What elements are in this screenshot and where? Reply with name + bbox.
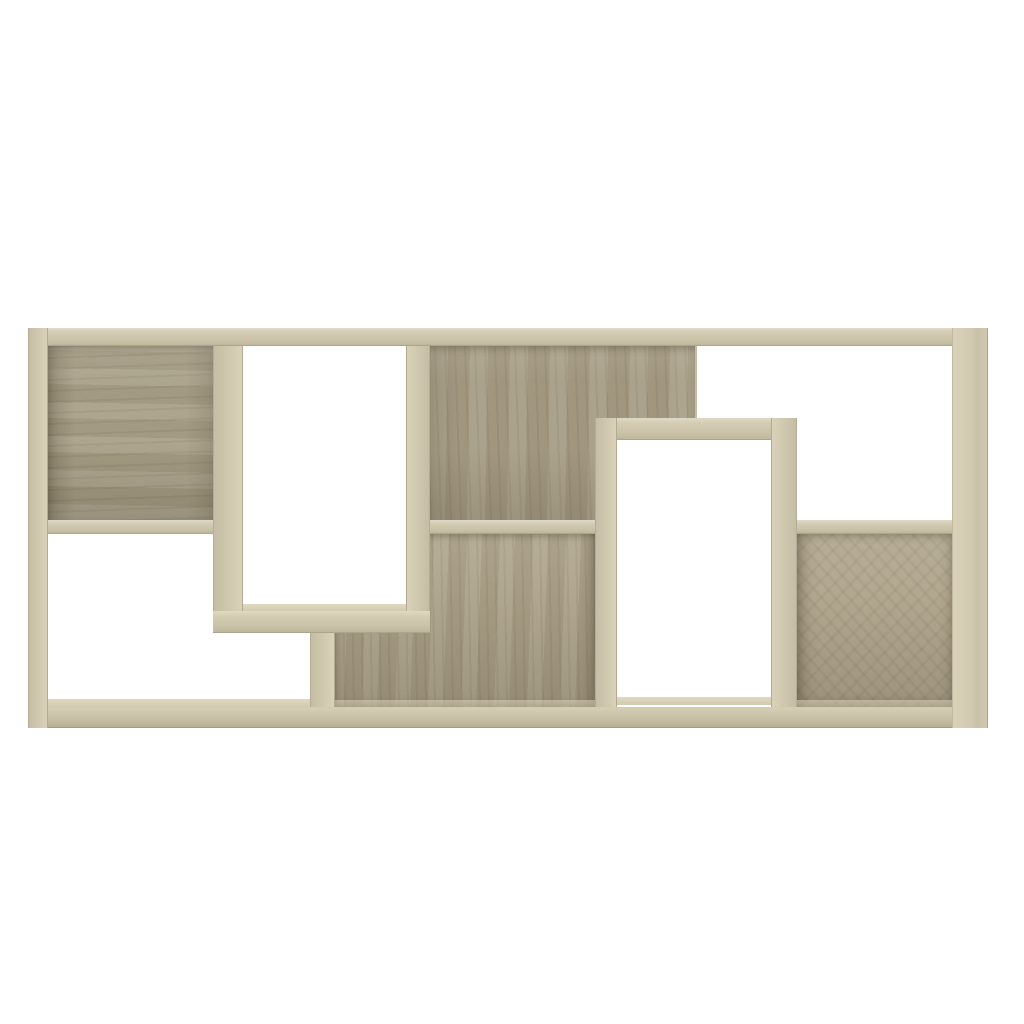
back-panel-top-left — [48, 346, 213, 520]
left-side-board — [28, 328, 48, 728]
lower-frame-top-board — [595, 418, 797, 440]
right-shelf — [797, 520, 952, 534]
open-compartment-lower-frame — [617, 440, 771, 705]
middle-shelf — [430, 520, 595, 534]
floor-face-lower-frame — [617, 697, 771, 705]
floor-face-bottom-left — [48, 699, 310, 707]
floor-face-bottom-right — [797, 700, 952, 707]
product-image-bookcase — [0, 0, 1024, 1024]
left-shelf — [48, 520, 213, 534]
floor-face-bottom-middle — [335, 700, 595, 707]
upper-frame-left-board — [213, 346, 243, 633]
lower-frame-left-board — [595, 418, 617, 707]
back-panel-bottom-right — [797, 534, 952, 707]
floor-face-upper-frame — [243, 604, 406, 611]
bottom-board — [28, 707, 988, 728]
lower-frame-right-board — [771, 418, 797, 707]
under-frame-divider-board — [310, 633, 335, 707]
right-side-board — [952, 328, 988, 728]
open-compartment-upper-frame — [243, 346, 406, 611]
top-board — [28, 328, 988, 346]
upper-frame-bottom-board — [213, 611, 430, 633]
upper-frame-right-board — [406, 346, 430, 633]
